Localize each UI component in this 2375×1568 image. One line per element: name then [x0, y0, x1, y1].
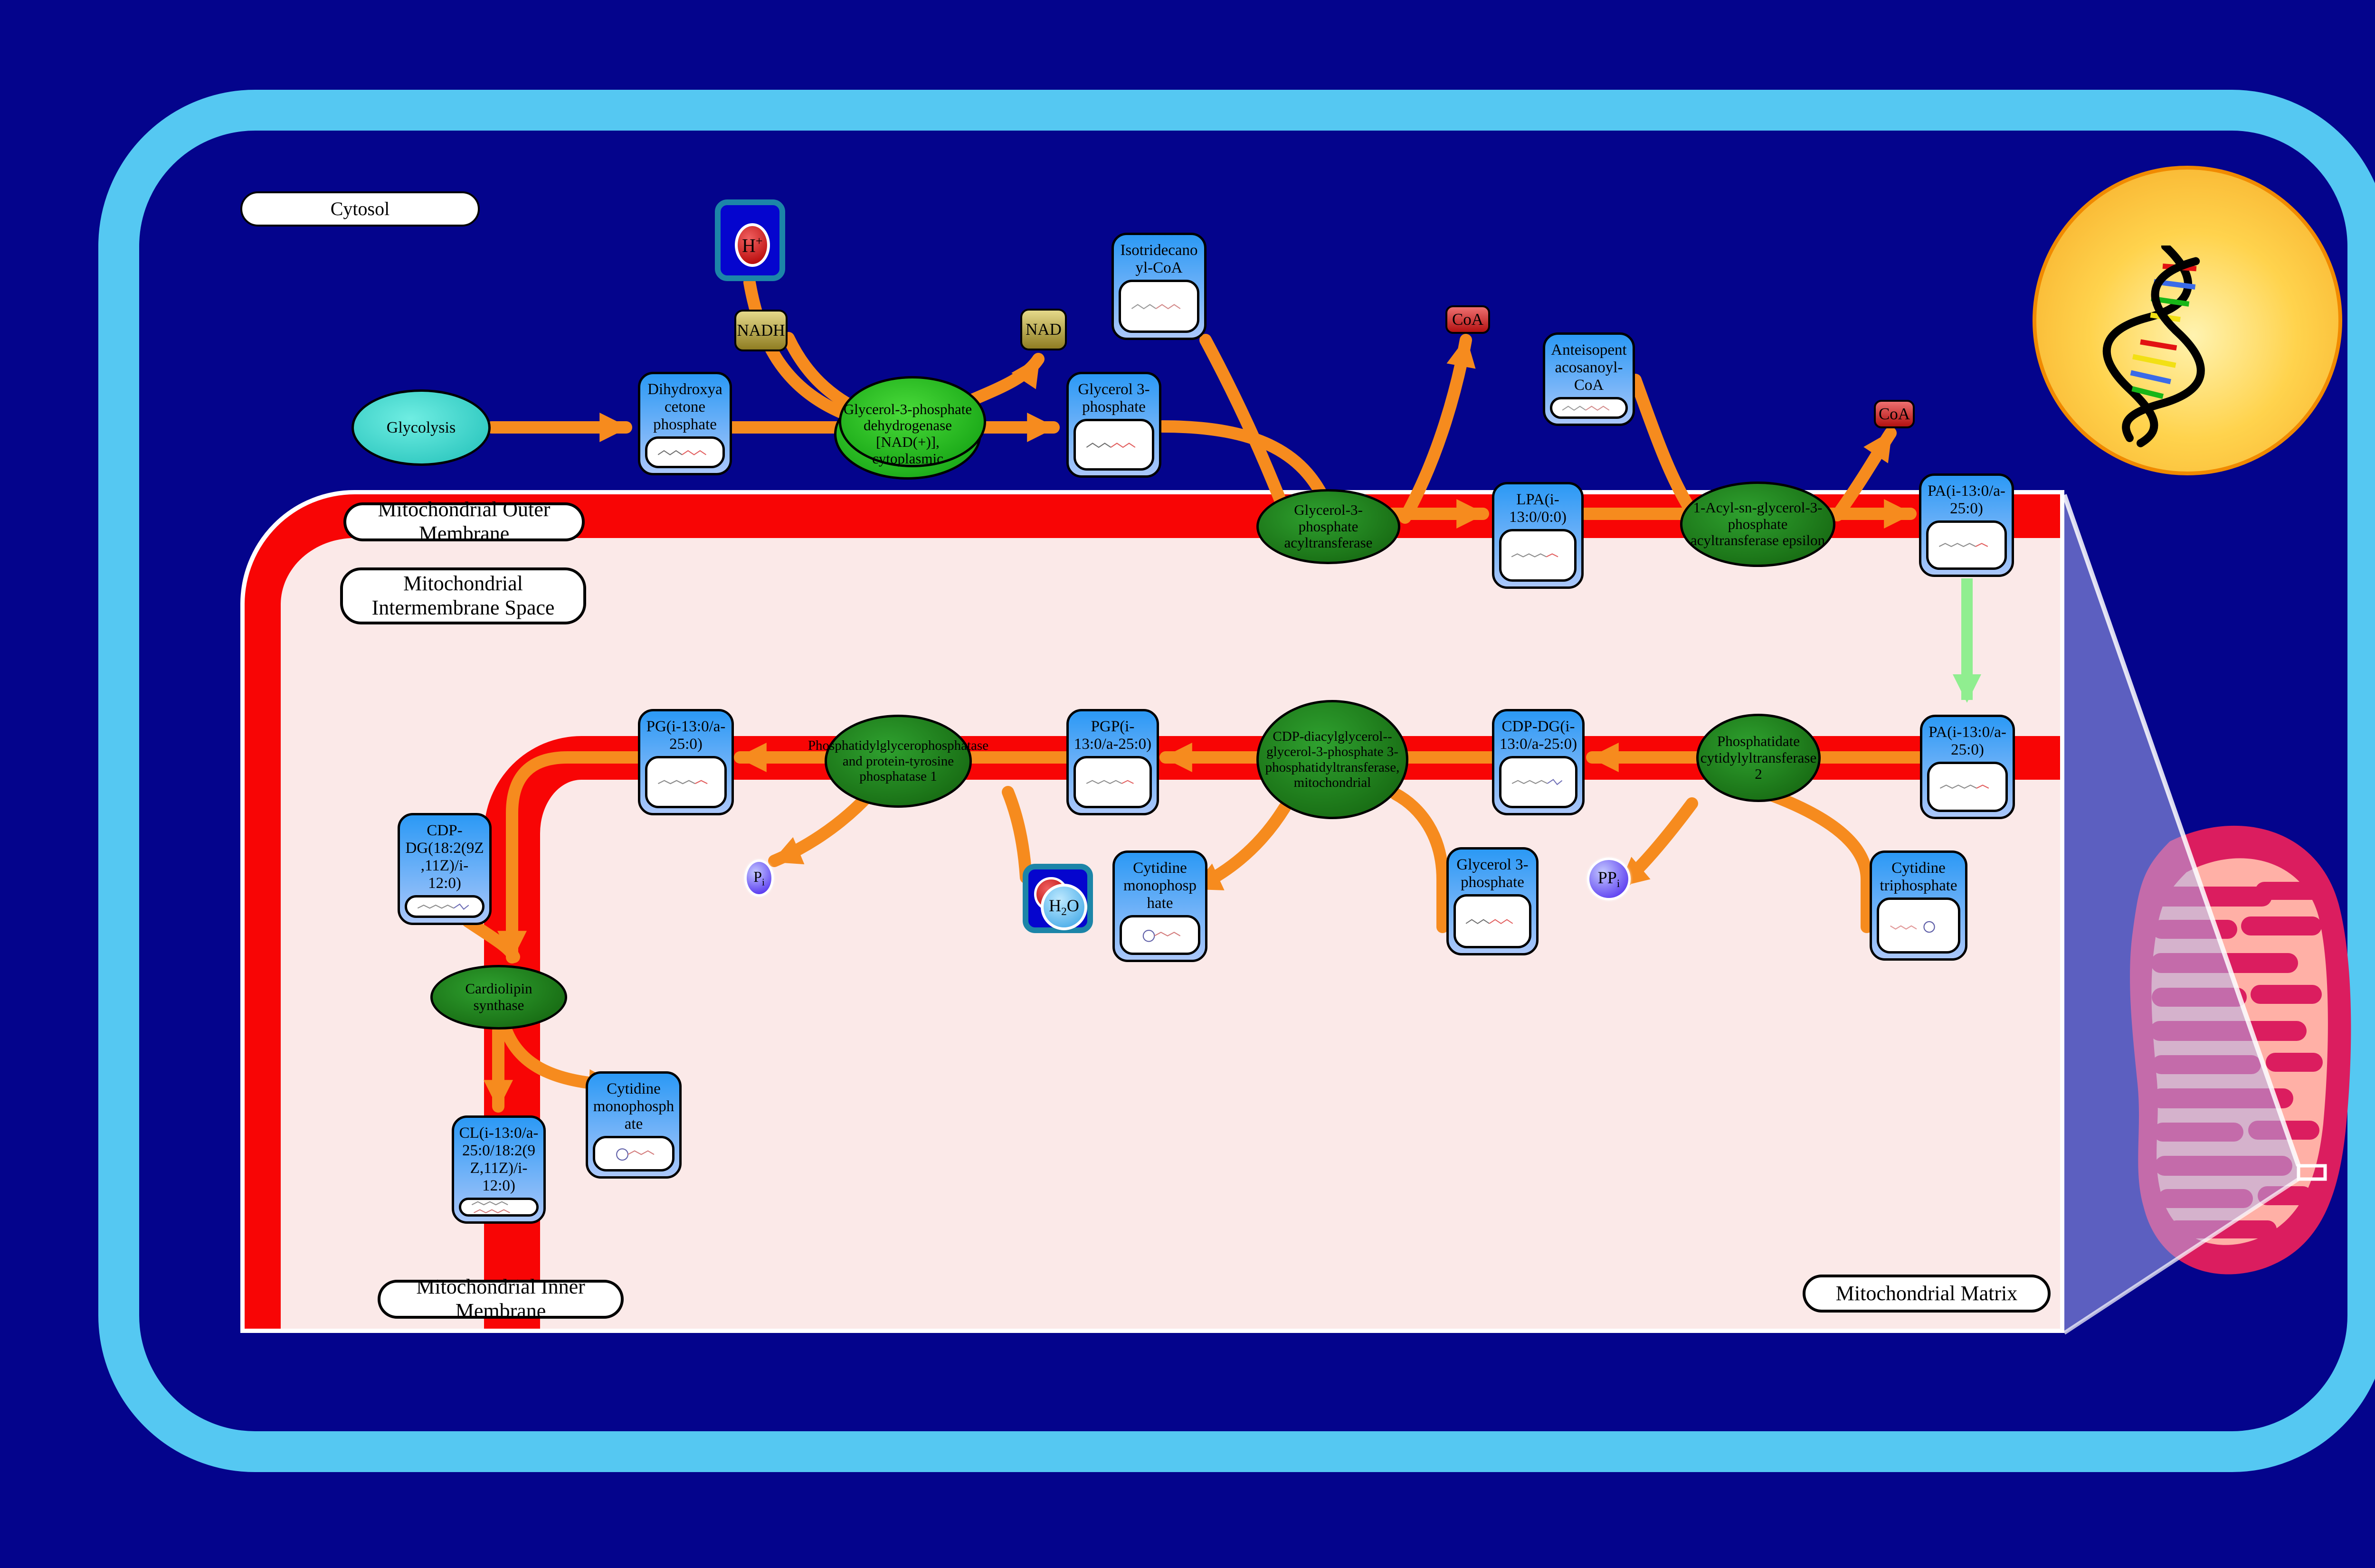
metabolite-g3p-matrix[interactable]: Glycerol 3-phosphate [1446, 847, 1539, 955]
nucleus-illustration [2033, 166, 2342, 475]
cofactor-h-plus[interactable]: H+ [715, 199, 785, 281]
metabolite-lpa[interactable]: LPA(i-13:0/0:0) [1492, 482, 1584, 589]
structure-drawing [1499, 529, 1577, 582]
structure-drawing [1926, 520, 2007, 570]
structure-drawing [405, 895, 484, 918]
outer-membrane-label: Mitochondrial Outer Membrane [343, 502, 585, 541]
cofactor-nadh[interactable]: NADH [734, 310, 788, 351]
intermembrane-space-label: Mitochondrial Intermembrane Space [340, 567, 586, 624]
structure-drawing [1073, 419, 1154, 471]
structure-drawing [1073, 756, 1152, 808]
metabolite-cdp-dg-inner[interactable]: CDP-DG(i-13:0/a-25:0) [1492, 709, 1585, 815]
metabolite-pg[interactable]: PG(i-13:0/a-25:0) [638, 709, 734, 815]
pathway-canvas: Cytosol Mitochondrial Outer Membrane Mit… [0, 0, 2375, 1568]
metabolite-cmp-2[interactable]: Cytidine monophosphate [586, 1071, 682, 1179]
dna-icon [2098, 246, 2241, 450]
metabolite-isotridecanoyl-coa[interactable]: Isotridecanoyl-CoA [1111, 233, 1206, 340]
cofactor-h2o[interactable]: H2O [1023, 864, 1093, 933]
cofactor-pi[interactable]: Pi [744, 860, 774, 897]
structure-drawing [1119, 280, 1199, 333]
metabolite-cl[interactable]: CL(i-13:0/a-25:0/18:2(9Z,11Z)/i-12:0) [452, 1115, 546, 1224]
metabolite-dhap[interactable]: Dihydroxyacetone phosphate [638, 372, 732, 475]
metabolite-pa-inner[interactable]: PA(i-13:0/a-25:0) [1920, 715, 2015, 819]
mitochondrion-illustration [2099, 803, 2374, 1297]
cytosol-label: Cytosol [240, 191, 480, 227]
cofactor-coa-1[interactable]: CoA [1445, 305, 1490, 334]
metabolite-cdp-dg-left[interactable]: CDP-DG(18:2(9Z,11Z)/i-12:0) [398, 813, 492, 925]
enzyme-phosphatidate-cytidylyltransferase-2[interactable]: Phosphatidate cytidylyltransferase 2 [1696, 714, 1821, 802]
structure-drawing [1453, 894, 1531, 948]
metabolite-pa-outer[interactable]: PA(i-13:0/a-25:0) [1919, 473, 2014, 577]
structure-drawing [1927, 762, 2008, 812]
structure-drawing [593, 1136, 674, 1171]
enzyme-g3p-dehydrogenase[interactable]: Glycerol-3-phosphate dehydrogenase [NAD(… [834, 388, 981, 480]
cofactor-ppi[interactable]: PPi [1587, 858, 1631, 900]
metabolite-g3p-cytosol[interactable]: Glycerol 3-phosphate [1066, 372, 1161, 478]
metabolite-ctp[interactable]: Cytidine triphosphate [1870, 850, 1967, 961]
inner-membrane-label: Mitochondrial Inner Membrane [378, 1280, 624, 1319]
matrix-label: Mitochondrial Matrix [1803, 1275, 2051, 1313]
metabolite-anteisopentacosanoyl-coa[interactable]: Anteisopentacosanoyl-CoA [1543, 332, 1635, 426]
water-molecule-icon: H2O [1028, 869, 1087, 927]
structure-drawing [1120, 915, 1200, 955]
metabolite-pgp[interactable]: PGP(i-13:0/a-25:0) [1066, 709, 1159, 815]
cofactor-nad[interactable]: NAD [1020, 309, 1067, 350]
enzyme-pgp-phosphatase[interactable]: Phosphatidylglycerophosphatase and prote… [825, 715, 972, 808]
enzyme-cdp-dag-phosphatidyltransferase[interactable]: CDP-diacylglycerol--glycerol-3-phosphate… [1256, 700, 1408, 819]
metabolite-cmp-1[interactable]: Cytidine monophosphate [1112, 850, 1207, 962]
glycolysis-node[interactable]: Glycolysis [351, 389, 491, 466]
enzyme-g3p-acyltransferase[interactable]: Glycerol-3-phosphate acyltransferase [1256, 489, 1400, 564]
structure-drawing [459, 1198, 539, 1217]
structure-drawing [1877, 897, 1960, 954]
inner-membrane-band [484, 736, 2060, 1329]
enzyme-agpat-epsilon[interactable]: 1-Acyl-sn-glycerol-3-phosphate acyltrans… [1680, 482, 1835, 567]
structure-drawing [1499, 756, 1577, 808]
structure-drawing [645, 756, 727, 808]
structure-drawing [645, 436, 725, 468]
cofactor-coa-2[interactable]: CoA [1874, 400, 1915, 428]
enzyme-cardiolipin-synthase[interactable]: Cardiolipin synthase [430, 965, 567, 1030]
structure-drawing [1550, 397, 1628, 419]
